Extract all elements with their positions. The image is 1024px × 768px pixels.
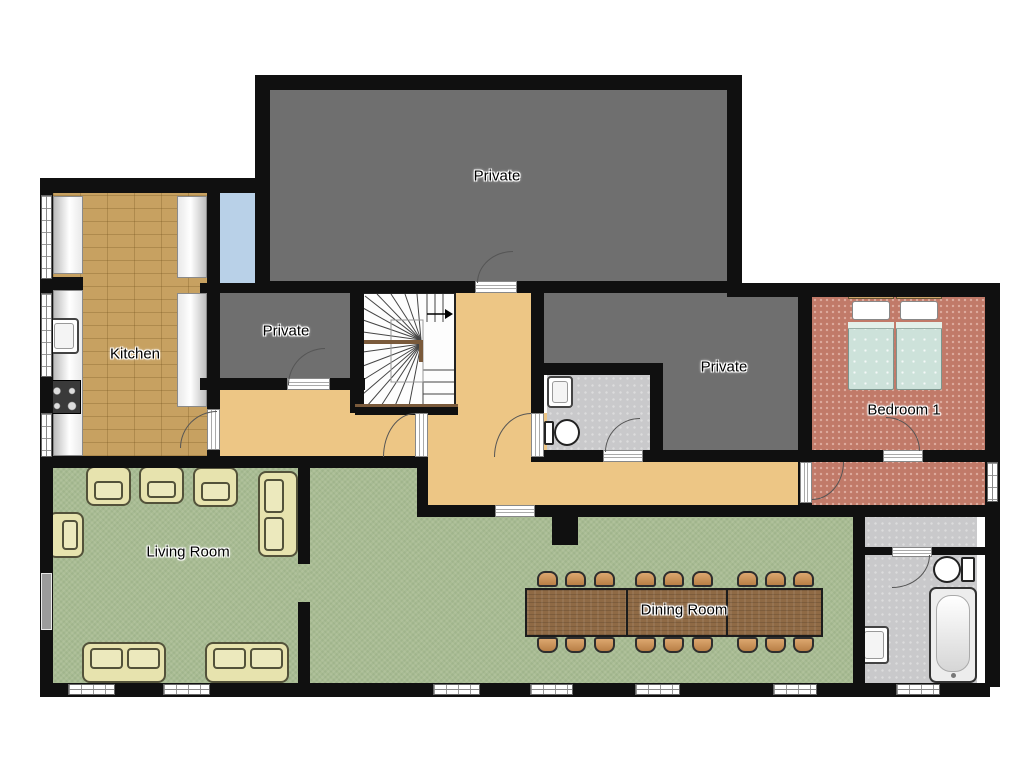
armchair-icon	[86, 466, 131, 506]
counter	[177, 196, 207, 278]
chair-icon	[765, 571, 786, 587]
window	[896, 684, 940, 695]
wall	[650, 363, 663, 462]
door-opening	[495, 505, 535, 517]
room-opening-floor	[298, 564, 310, 602]
chair-icon	[537, 571, 558, 587]
chair-icon	[663, 571, 684, 587]
window	[68, 684, 115, 695]
bed-icon	[896, 292, 942, 390]
sofa-icon	[258, 471, 298, 557]
window	[163, 684, 210, 695]
window	[41, 195, 52, 279]
window	[987, 462, 998, 502]
window	[773, 684, 817, 695]
chair-icon	[663, 637, 684, 653]
wall	[552, 517, 578, 545]
corridor-floor	[455, 293, 531, 413]
toilet-icon	[961, 557, 975, 582]
chair-icon	[565, 637, 586, 653]
sink-icon	[49, 318, 79, 354]
window	[41, 413, 52, 457]
room-label-living-room: Living Room	[146, 544, 229, 561]
room-label-bedroom-1: Bedroom 1	[867, 402, 940, 419]
wall	[727, 75, 742, 297]
toilet-icon	[933, 556, 961, 583]
armchair-icon	[48, 512, 84, 558]
wall	[533, 363, 663, 375]
room-label-kitchen: Kitchen	[110, 346, 160, 363]
toilet-icon	[554, 419, 580, 446]
sink-icon	[547, 376, 573, 408]
chair-icon	[565, 571, 586, 587]
room-private-right-floor	[663, 363, 798, 450]
window	[433, 684, 480, 695]
sofa-icon	[82, 642, 166, 683]
wall	[298, 467, 310, 564]
wall	[740, 283, 1000, 297]
room-label-dining-room: Dining Room	[641, 602, 728, 619]
sofa-icon	[205, 642, 289, 683]
armchair-icon	[139, 466, 184, 504]
room-private-right-floor	[544, 293, 798, 363]
window	[635, 684, 680, 695]
counter	[53, 290, 83, 456]
door-opening	[531, 413, 544, 457]
window	[41, 293, 52, 377]
wall	[350, 285, 364, 413]
door-opening	[415, 413, 428, 457]
wall	[298, 602, 310, 683]
closet-floor	[218, 190, 257, 285]
wall	[255, 75, 742, 90]
bathtub-icon	[929, 587, 977, 683]
room-label-private-right: Private	[701, 359, 748, 376]
room-living-room-floor	[310, 467, 417, 683]
wall	[200, 283, 365, 293]
counter	[53, 196, 83, 274]
chair-icon	[737, 637, 758, 653]
wall	[200, 378, 365, 390]
room-label-private-left: Private	[263, 323, 310, 340]
chair-icon	[594, 637, 615, 653]
window	[530, 684, 573, 695]
chair-icon	[692, 571, 713, 587]
door-opening	[883, 450, 923, 462]
wall	[853, 513, 865, 683]
chair-icon	[635, 571, 656, 587]
chair-icon	[537, 637, 558, 653]
staircase-icon	[361, 292, 456, 409]
chair-icon	[635, 637, 656, 653]
chair-icon	[765, 637, 786, 653]
wall	[40, 178, 270, 193]
chair-icon	[594, 571, 615, 587]
floor-plan: Private Private Private Kitchen Bedroom …	[0, 0, 1024, 768]
bed-icon	[848, 292, 894, 390]
armchair-icon	[193, 467, 238, 507]
chair-icon	[737, 571, 758, 587]
chair-icon	[793, 571, 814, 587]
toilet-icon	[544, 421, 554, 445]
chair-icon	[793, 637, 814, 653]
patio-door	[41, 573, 52, 630]
chair-icon	[692, 637, 713, 653]
door-opening	[800, 462, 812, 503]
room-label-private-top: Private	[474, 168, 521, 185]
wall	[40, 456, 428, 468]
